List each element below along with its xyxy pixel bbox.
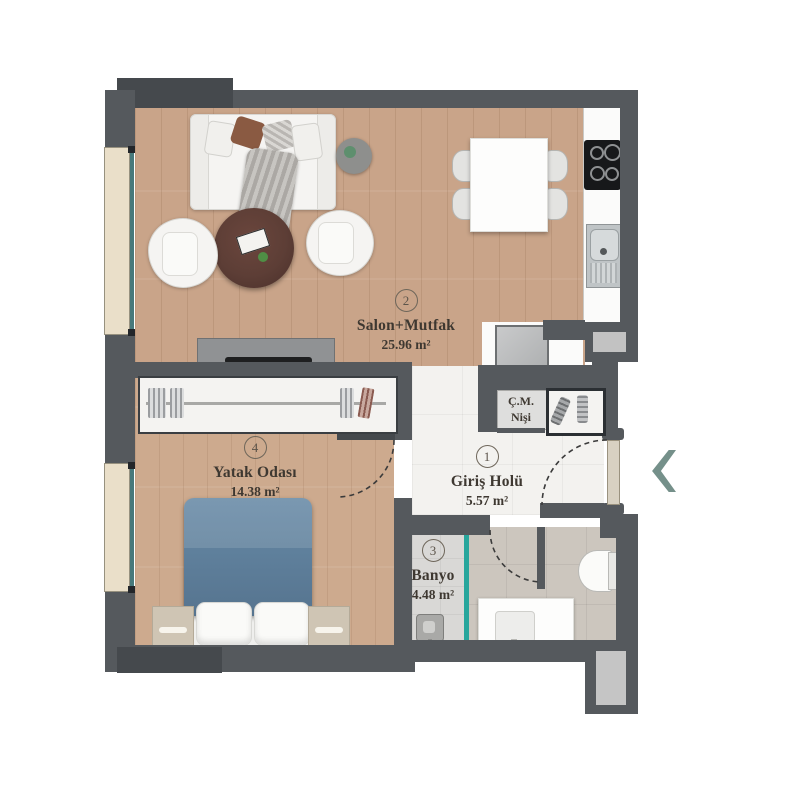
bed-pillow-left [196,602,252,646]
cm-niche-label-line2: Nişi [497,410,545,426]
room-area: 5.57 m² [407,493,567,509]
wall-bath-top [394,515,490,535]
window-glass [130,150,134,332]
chevron-left-icon[interactable] [650,450,676,492]
room-name: Salon+Mutfak [326,317,486,335]
wall-right-kitchen [620,90,638,325]
floor-plan-canvas: 2 Salon+Mutfak 25.96 m² 1 Giriş Holü 5.5… [0,0,800,800]
room-name: Banyo [374,567,492,585]
room-area: 14.38 m² [175,484,335,500]
window-frame-cap [128,586,135,593]
hanger-icon-2 [170,388,184,418]
nightstand-right-handle [315,627,343,633]
wall-kitchen-stub [543,320,585,340]
window-frame-cap [128,329,135,336]
hanger-icon-1 [148,388,166,418]
window-frame-cap [128,146,135,153]
garment-icon-coat [550,396,571,426]
bed-duvet-fold [184,498,312,548]
stove-burner-3 [590,166,605,181]
room-number-badge: 4 [244,436,267,459]
wall-left-middle [105,333,135,463]
dining-table [470,138,548,232]
window-left-upper [104,147,130,335]
kitchen-cabinet [495,325,549,370]
window-left-lower [104,463,130,592]
sink-basin [590,229,619,261]
hanger-icon-4 [357,387,374,419]
shower-drain [416,614,444,642]
bedroom-door-leaf[interactable] [337,433,395,440]
wall-left-upper [105,90,135,147]
sofa-arm-right [317,114,336,210]
window-frame-cap [128,462,135,469]
bed-pillow-right [254,602,310,646]
wall-cm-left [478,365,497,432]
plant-flower-icon [355,152,363,160]
room-label-salon: 2 Salon+Mutfak 25.96 m² [326,289,486,353]
stove-burner-4 [605,167,619,181]
shaft-window-upper [593,332,626,352]
cm-niche-label-line1: Ç.M. [497,394,545,410]
nightstand-left [152,606,194,650]
shaft-window-lower [596,651,626,705]
stove-burner-2 [604,144,621,161]
room-number-badge: 3 [422,539,445,562]
wall-bath-bottom [408,640,588,662]
window-glass [130,466,134,589]
wardrobe [138,376,398,434]
sink-drainboard [590,263,617,283]
room-area: 4.48 m² [374,587,492,603]
coat-closet [546,388,606,436]
bathroom-door-leaf[interactable] [537,527,545,589]
room-label-bathroom: 3 Banyo 4.48 m² [374,539,492,603]
wall-bottom-left-block [117,647,222,673]
room-number-badge: 2 [395,289,418,312]
coffee-table-plant-icon [258,252,268,262]
cm-niche-rail [497,428,545,433]
room-name: Giriş Holü [407,473,567,491]
room-number-badge: 1 [476,445,499,468]
armchair-right-cushion [318,222,354,264]
armchair-left-cushion [162,232,198,276]
stove-burner-1 [590,146,604,160]
wall-bath-right [616,514,638,650]
cm-niche-label: Ç.M. Nişi [497,394,545,425]
room-label-hall: 1 Giriş Holü 5.57 m² [407,445,567,509]
shower-drain-cap [423,621,435,633]
nightstand-left-handle [159,627,187,633]
entrance-door-leaf[interactable] [607,440,620,505]
sofa-arm-left [190,114,209,210]
room-name: Yatak Odası [175,464,335,482]
room-label-bedroom: 4 Yatak Odası 14.38 m² [175,436,335,500]
room-area: 25.96 m² [326,337,486,353]
nightstand-right [308,606,350,650]
hanger-icon-3 [340,388,354,418]
sink-faucet-icon [600,248,607,255]
garment-icon-jacket [577,395,588,423]
